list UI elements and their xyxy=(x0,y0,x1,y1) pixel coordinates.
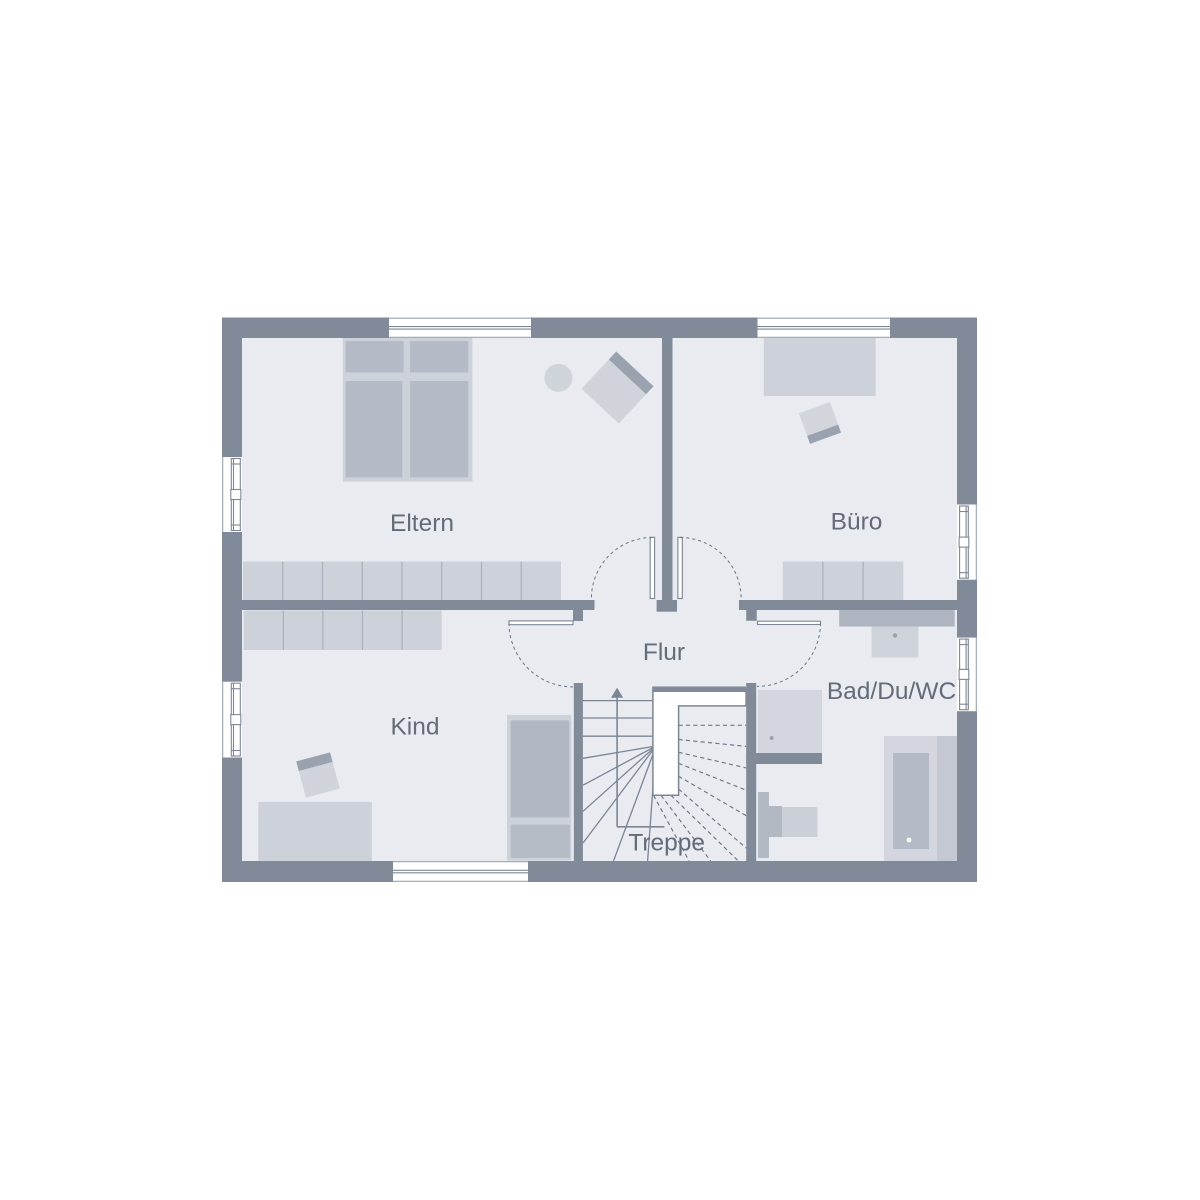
svg-text:Flur: Flur xyxy=(643,639,685,666)
svg-text:Kind: Kind xyxy=(390,714,439,741)
svg-text:Eltern: Eltern xyxy=(390,510,454,537)
svg-text:Büro: Büro xyxy=(831,509,883,536)
svg-text:Bad/Du/WC: Bad/Du/WC xyxy=(827,678,956,705)
svg-text:Treppe: Treppe xyxy=(628,830,705,857)
